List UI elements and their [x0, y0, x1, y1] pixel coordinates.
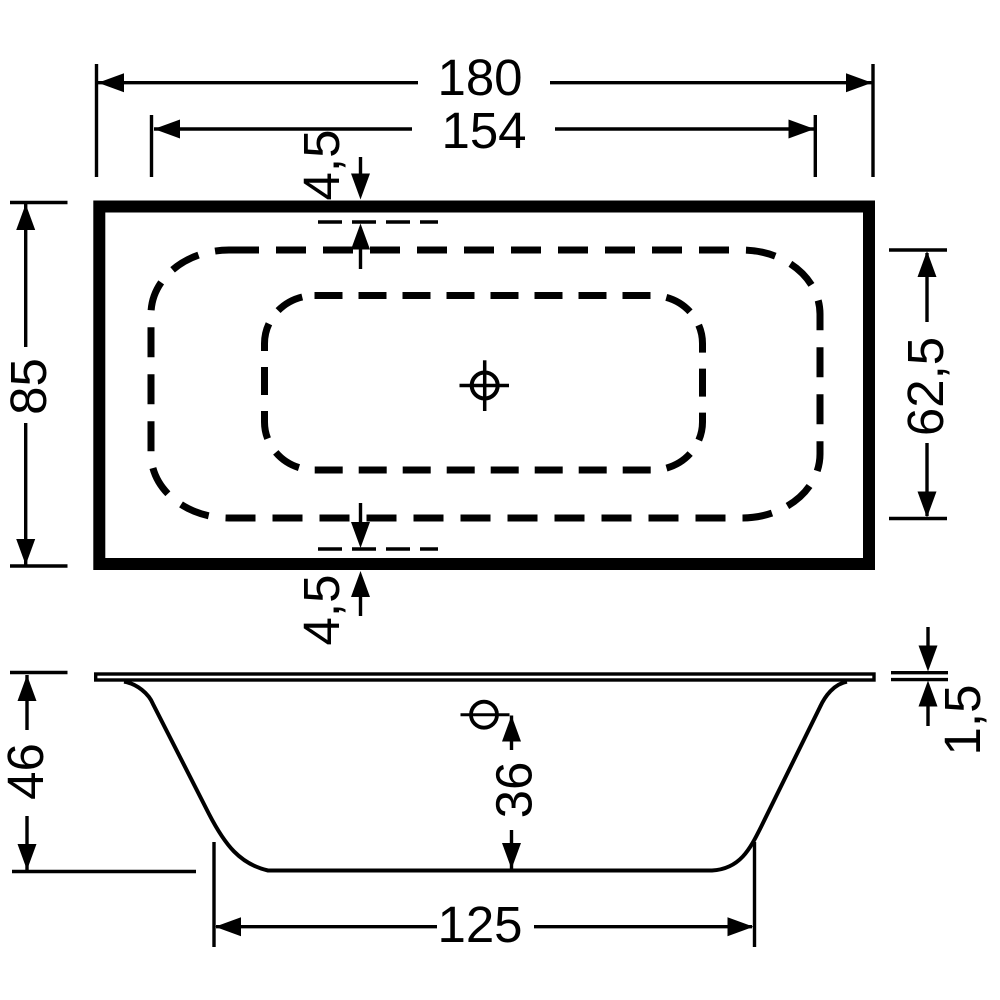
svg-text:180: 180 [437, 49, 522, 106]
svg-text:125: 125 [437, 896, 522, 953]
svg-text:4,5: 4,5 [293, 130, 350, 201]
svg-text:154: 154 [441, 102, 526, 159]
svg-text:62,5: 62,5 [897, 337, 954, 436]
svg-text:4,5: 4,5 [293, 575, 350, 646]
svg-text:46: 46 [0, 743, 54, 800]
svg-text:36: 36 [486, 762, 543, 819]
svg-text:1,5: 1,5 [934, 685, 991, 756]
svg-text:85: 85 [0, 358, 57, 415]
